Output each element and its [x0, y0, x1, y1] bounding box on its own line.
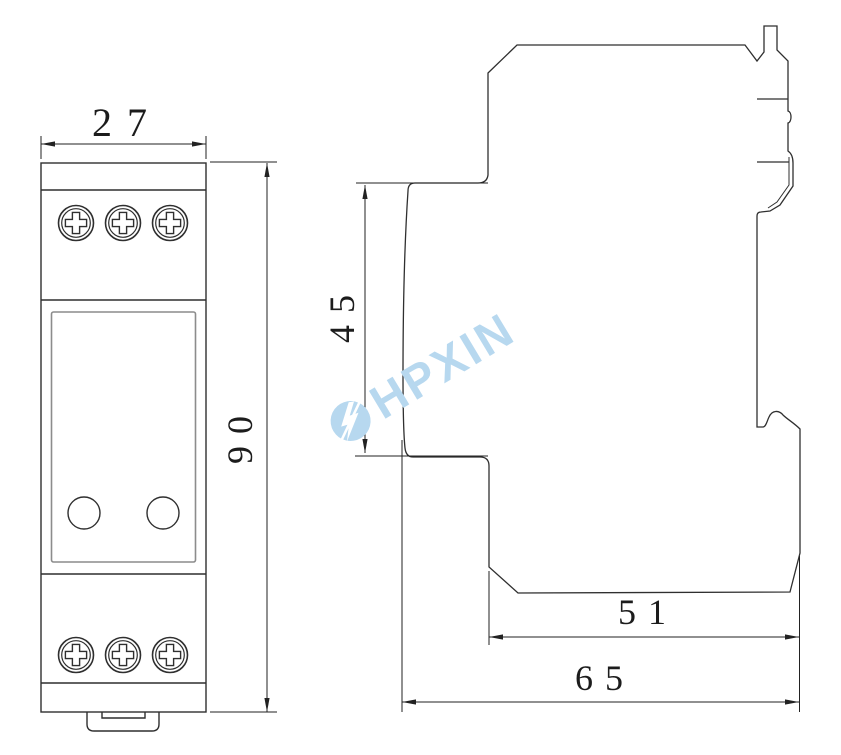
round-indicator — [68, 497, 100, 529]
phillips-screw-icon — [153, 206, 188, 241]
dim-label-side-lower-depth: 51 — [585, 592, 705, 632]
dim-label-side-upper-height: 45 — [322, 256, 362, 376]
din-clip-tab-inner — [102, 712, 145, 718]
phillips-screw-icon — [106, 638, 141, 673]
phillips-screw-icon — [59, 638, 94, 673]
din-clip-tab — [87, 712, 159, 731]
dim-label-front-width: 27 — [64, 103, 184, 143]
front-body-outline — [41, 163, 206, 712]
drawing-sheet: HPXIN 27 90 45 51 65 — [0, 0, 841, 755]
dim-label-front-height: 90 — [220, 377, 260, 497]
phillips-screw-icon — [153, 638, 188, 673]
dim-label-side-total-depth: 65 — [542, 658, 662, 698]
side-body-outline — [403, 26, 800, 593]
clamp-hook-inner — [768, 157, 789, 208]
phillips-screw-icon — [59, 206, 94, 241]
dimension-side-upper-height — [355, 183, 488, 456]
front-view — [41, 163, 206, 731]
phillips-screw-icon — [106, 206, 141, 241]
round-indicator — [147, 497, 179, 529]
side-view — [403, 26, 800, 593]
